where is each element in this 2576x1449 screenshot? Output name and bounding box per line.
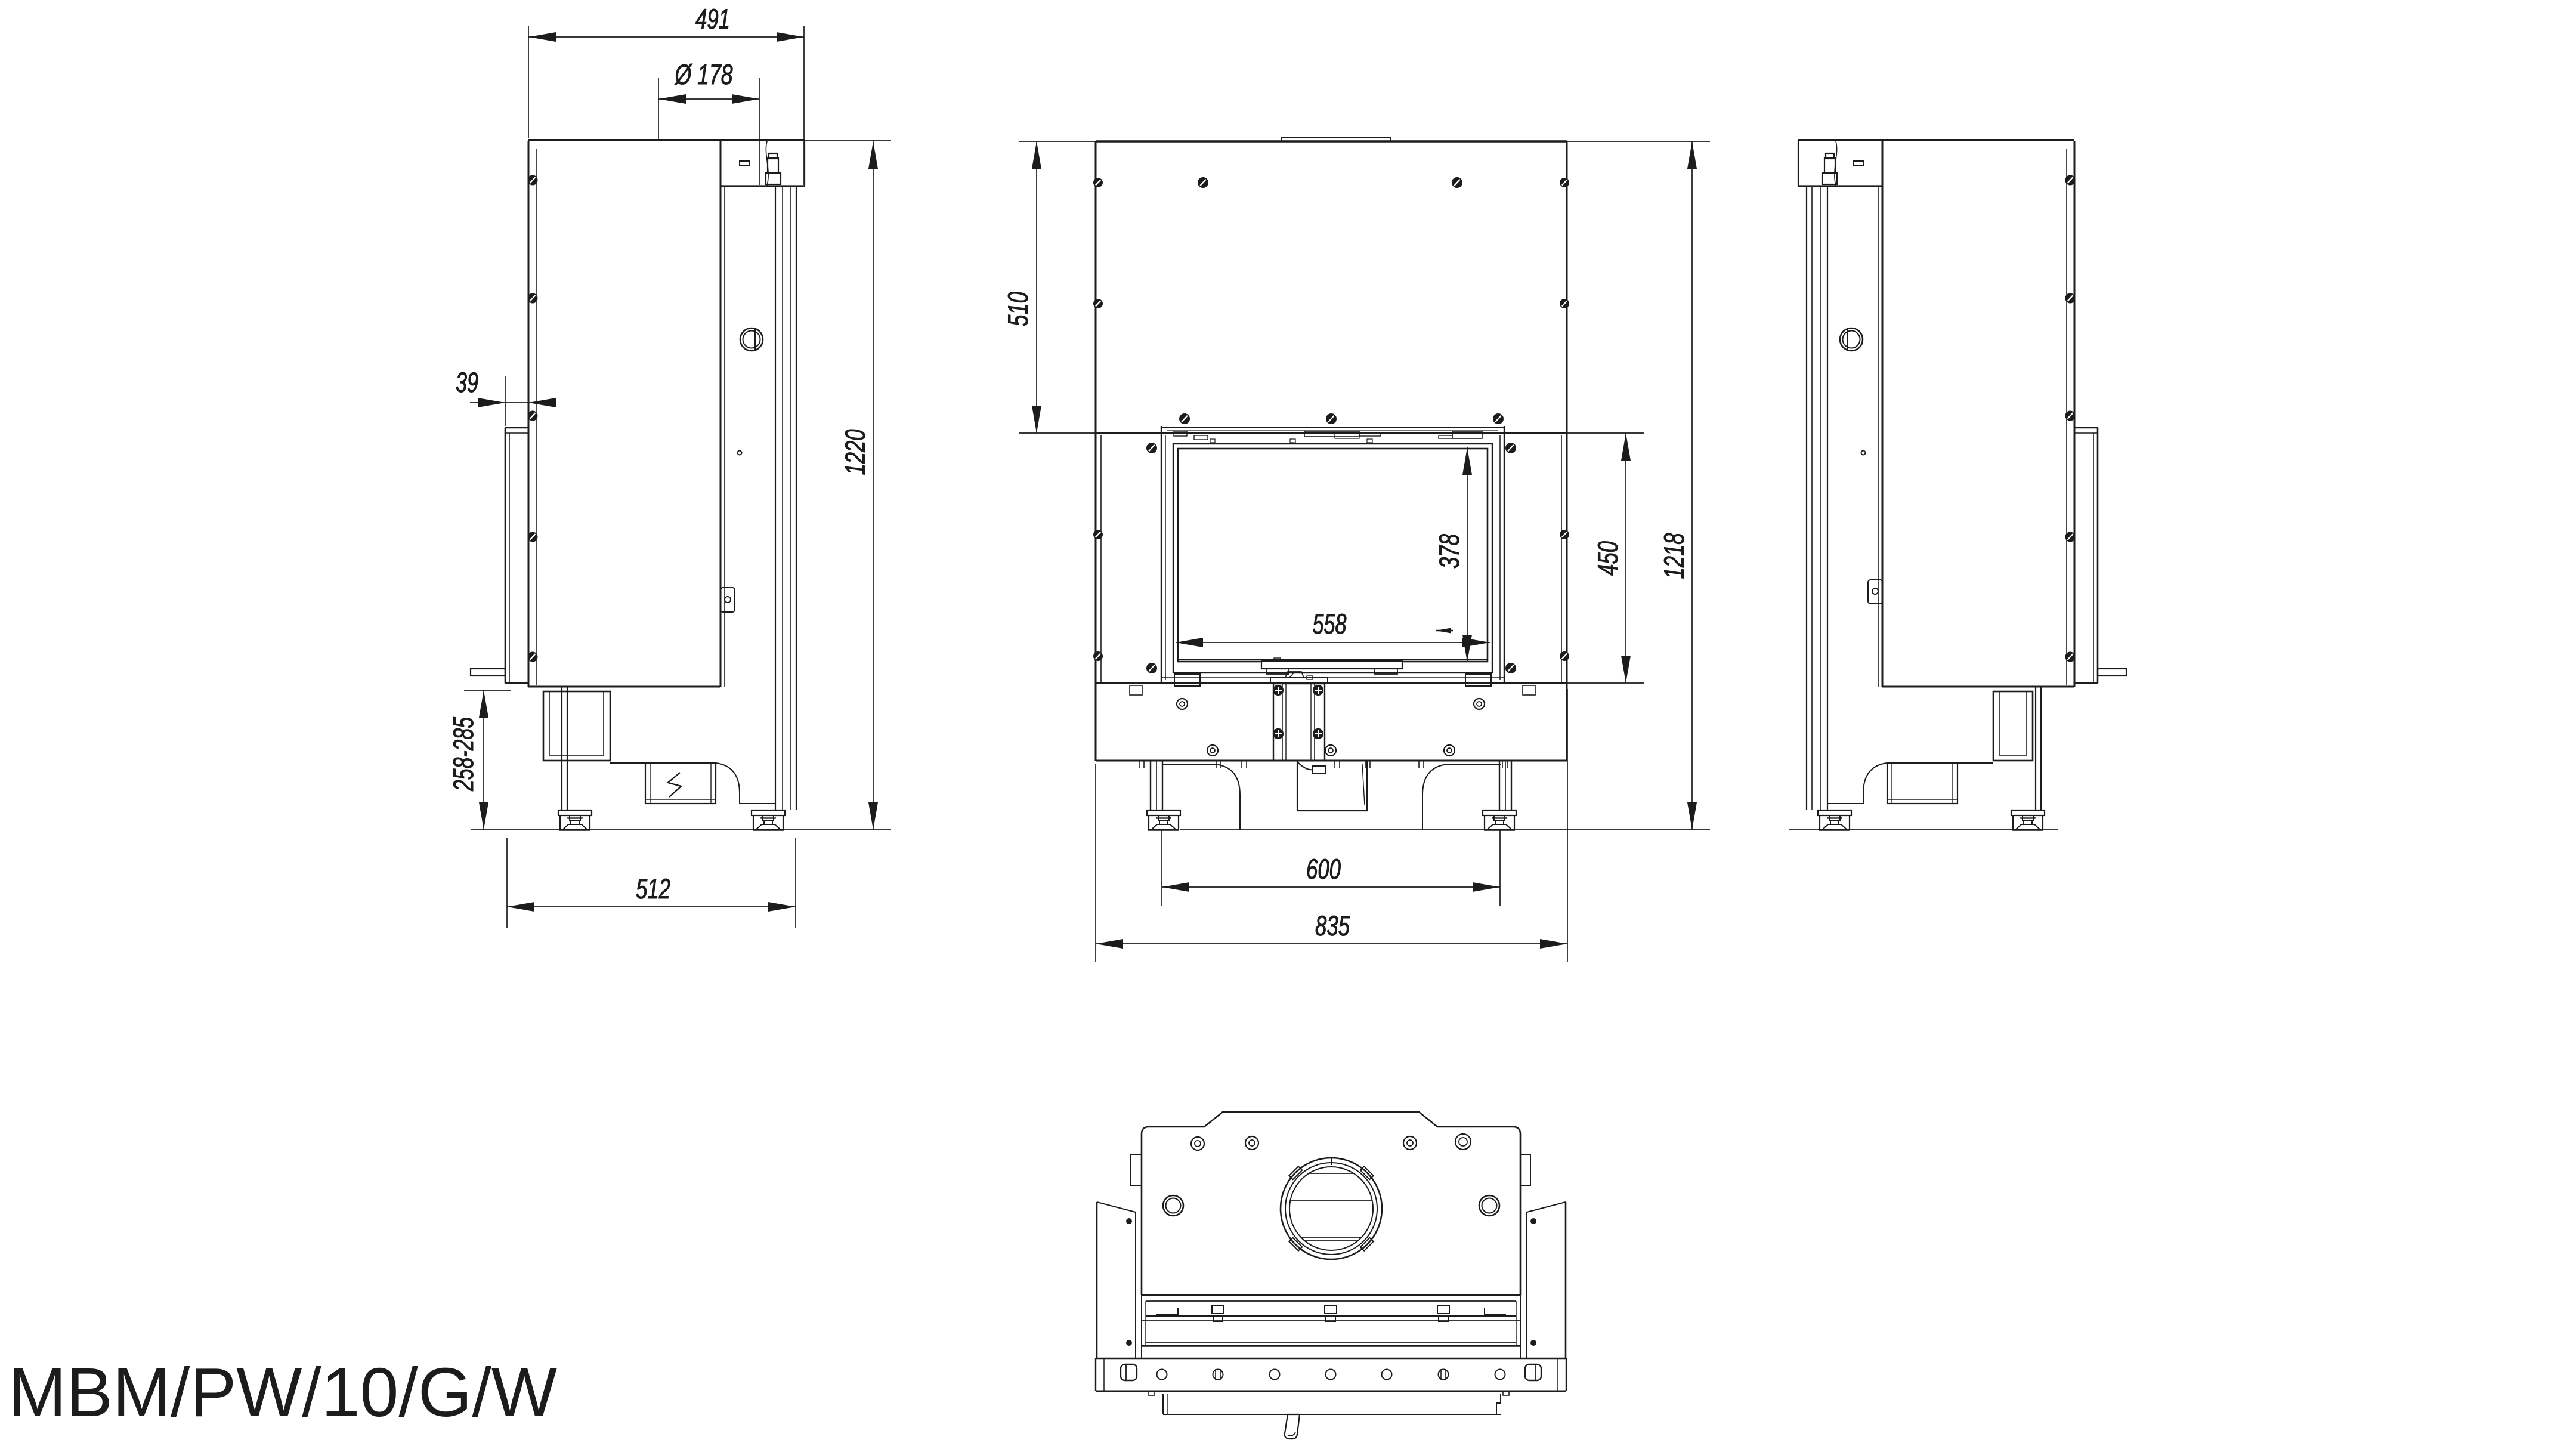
svg-text:MBM/PW/10/G/W: MBM/PW/10/G/W xyxy=(8,1354,558,1431)
svg-text:1220: 1220 xyxy=(839,430,871,475)
svg-text:491: 491 xyxy=(695,3,730,35)
svg-text:835: 835 xyxy=(1315,910,1350,941)
svg-text:39: 39 xyxy=(456,366,478,398)
svg-text:558: 558 xyxy=(1313,608,1347,639)
svg-text:450: 450 xyxy=(1592,541,1623,576)
svg-text:512: 512 xyxy=(636,873,670,904)
svg-text:258-285: 258-285 xyxy=(447,716,479,791)
svg-text:600: 600 xyxy=(1306,853,1341,885)
svg-text:Ø 178: Ø 178 xyxy=(674,58,733,90)
svg-text:378: 378 xyxy=(1433,534,1465,569)
svg-text:510: 510 xyxy=(1002,292,1034,326)
svg-text:1218: 1218 xyxy=(1658,533,1690,579)
